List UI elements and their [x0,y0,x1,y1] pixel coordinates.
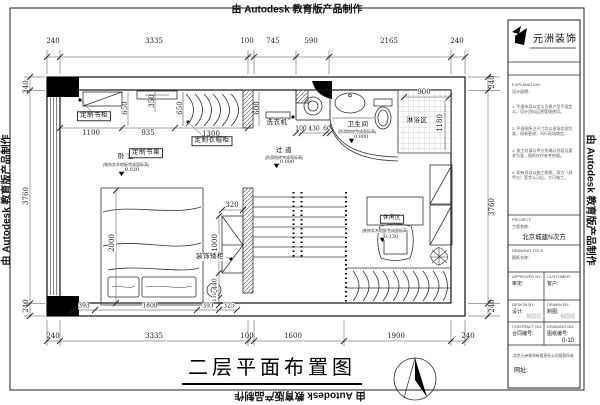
design-label-en: DESIGN BY: [512,303,535,307]
dim: 1180 [436,114,444,132]
approved-label-en: APPROVED BY: [512,275,542,279]
dim: 393 [202,303,213,310]
dim: 3335 [145,332,163,340]
dim: 350 [148,94,156,107]
contract-label-cn: 合同编号: [512,332,533,337]
dim: 393 [78,303,89,310]
plant-icon [430,247,448,266]
design-label-cn: 设计: [512,310,523,315]
dim: 1800 [142,303,157,310]
label-desk: 定制书桌 [129,148,163,158]
label-wardrobe: 定制衣帽柜 [192,136,233,146]
note-4: 4. 如有异议以施工图纸、双方（经甲方）签字认可后，方可施工。 [512,170,574,181]
dim: 650 [121,101,129,114]
dim: 600 [253,101,261,114]
dim: 3335 [145,37,163,45]
label-washer: 洗衣机 [267,120,288,127]
room-label-corridor: 过 道 [276,148,292,155]
design-signature: 相国强 [526,313,541,320]
dim: 240 [450,37,463,45]
room-label-shower: 淋浴区 [407,118,428,125]
drawing-number: 0-10 [562,338,574,344]
dim: 240 [461,332,474,340]
edge-text-bottom: 由 Autodesk 教育版产品制作 [234,390,365,405]
company-logo-text: 元洲装饰 [533,30,577,45]
dim: 3760 [22,187,30,205]
drawingno-label-en: DRAWING NO: [547,325,574,329]
dim: 240 [22,299,30,312]
note-2: 2. 平面图所注尺寸均以现场实测为准，如有更改，另行现场商定。 [512,126,574,137]
room-label-leisure: 休闲区 [380,215,404,224]
floorplan-canvas [0,0,600,405]
dim: 240 [46,332,59,340]
dim: 430 [308,126,319,133]
drawn-label-en: DRAWN BY: [547,303,569,307]
dim: 130 [212,292,218,302]
copyright-line: 北京元洲装饰有限责任公司版权所有 [513,355,574,359]
dim: 60 [323,126,331,133]
contract-label-en: CONTRACT NO: [512,325,542,329]
explanation-label-en: EXPLANATION: [512,83,541,87]
dim: 1100 [82,129,100,137]
dim: 240 [46,37,59,45]
dim: 240 [488,299,496,312]
explanation-label-cn: 设计说明: [512,90,529,94]
website-label: 网址: [514,368,528,374]
label-low-cabinet: 装饰矮柜 [196,254,224,261]
drawn-signature: 相国强 [560,313,575,320]
dim: 440 [212,278,219,289]
dim: 325 [223,303,234,310]
dim: 1600 [284,332,302,340]
edge-text-right: 由 Autodesk 教育版产品制作 [585,134,600,265]
dim: 650 [176,101,184,114]
dim: 240 [488,75,496,88]
edge-text-top: 由 Autodesk 教育版产品制作 [231,1,362,16]
drawing-title: 二层平面布置图 [182,351,362,385]
dim: 2000 [108,234,116,252]
dim: 590 [304,37,317,45]
dim: 240 [22,80,30,93]
room-level-corridor: 0.000 [280,159,294,165]
edge-text-left: 由 Autodesk 教育版产品制作 [0,134,13,265]
project-name: 北京城建N次方 [522,231,566,241]
drawing-title-label-cn: 图纸名称: [512,256,529,260]
room-level-leisure: 0.130 [384,234,398,240]
drawingno-label-cn: 图纸编号: [547,332,568,337]
note-3: 3. 施工时请以甲方所确认内容及要求为准，图纸仅作参考依据。 [512,148,574,159]
room-note-leisure: (装饰实木地板完成面标高) [362,229,409,233]
columns [47,77,79,316]
dim: 1900 [387,332,405,340]
room-level-bathroom: 0.000 [354,134,368,140]
dim: 100 [240,37,253,45]
dim: 100 [240,332,253,340]
dim: 935 [141,129,154,137]
north-arrow-icon [394,358,436,400]
project-label-cn: 工程名称: [512,225,529,229]
note-1: 1. 平面布局以定义为原户型平面定义，设计资料运营管理使用。 [512,104,574,115]
window [51,97,57,295]
dim: 320 [225,201,238,209]
dim: 100 [295,126,306,133]
room-level-bedroom: 0.020 [125,167,139,173]
dim: 2165 [380,37,398,45]
customer-label-en: CUSTOMER: [547,275,571,279]
drawing-title-label-en: DRAWING TITLE: [512,249,544,253]
drawn-label-cn: 制图: [547,310,558,315]
dim: 900 [417,88,430,96]
customer-label-cn: 客户: [547,282,558,287]
dim: 1000 [211,234,219,252]
cad-sheet: 由 Autodesk 教育版产品制作 由 Autodesk 教育版产品制作 由 … [0,0,600,405]
dim: 3760 [488,198,496,216]
stairs [253,192,346,302]
room-label-bathroom: 卫生间 [348,122,369,129]
project-label-en: PROJECT: [512,218,531,222]
dim: 745 [266,37,279,45]
approved-label-cn: 审定: [512,282,523,287]
logo-icon [512,26,527,45]
label-bookcase: 定制书柜 [77,111,111,121]
